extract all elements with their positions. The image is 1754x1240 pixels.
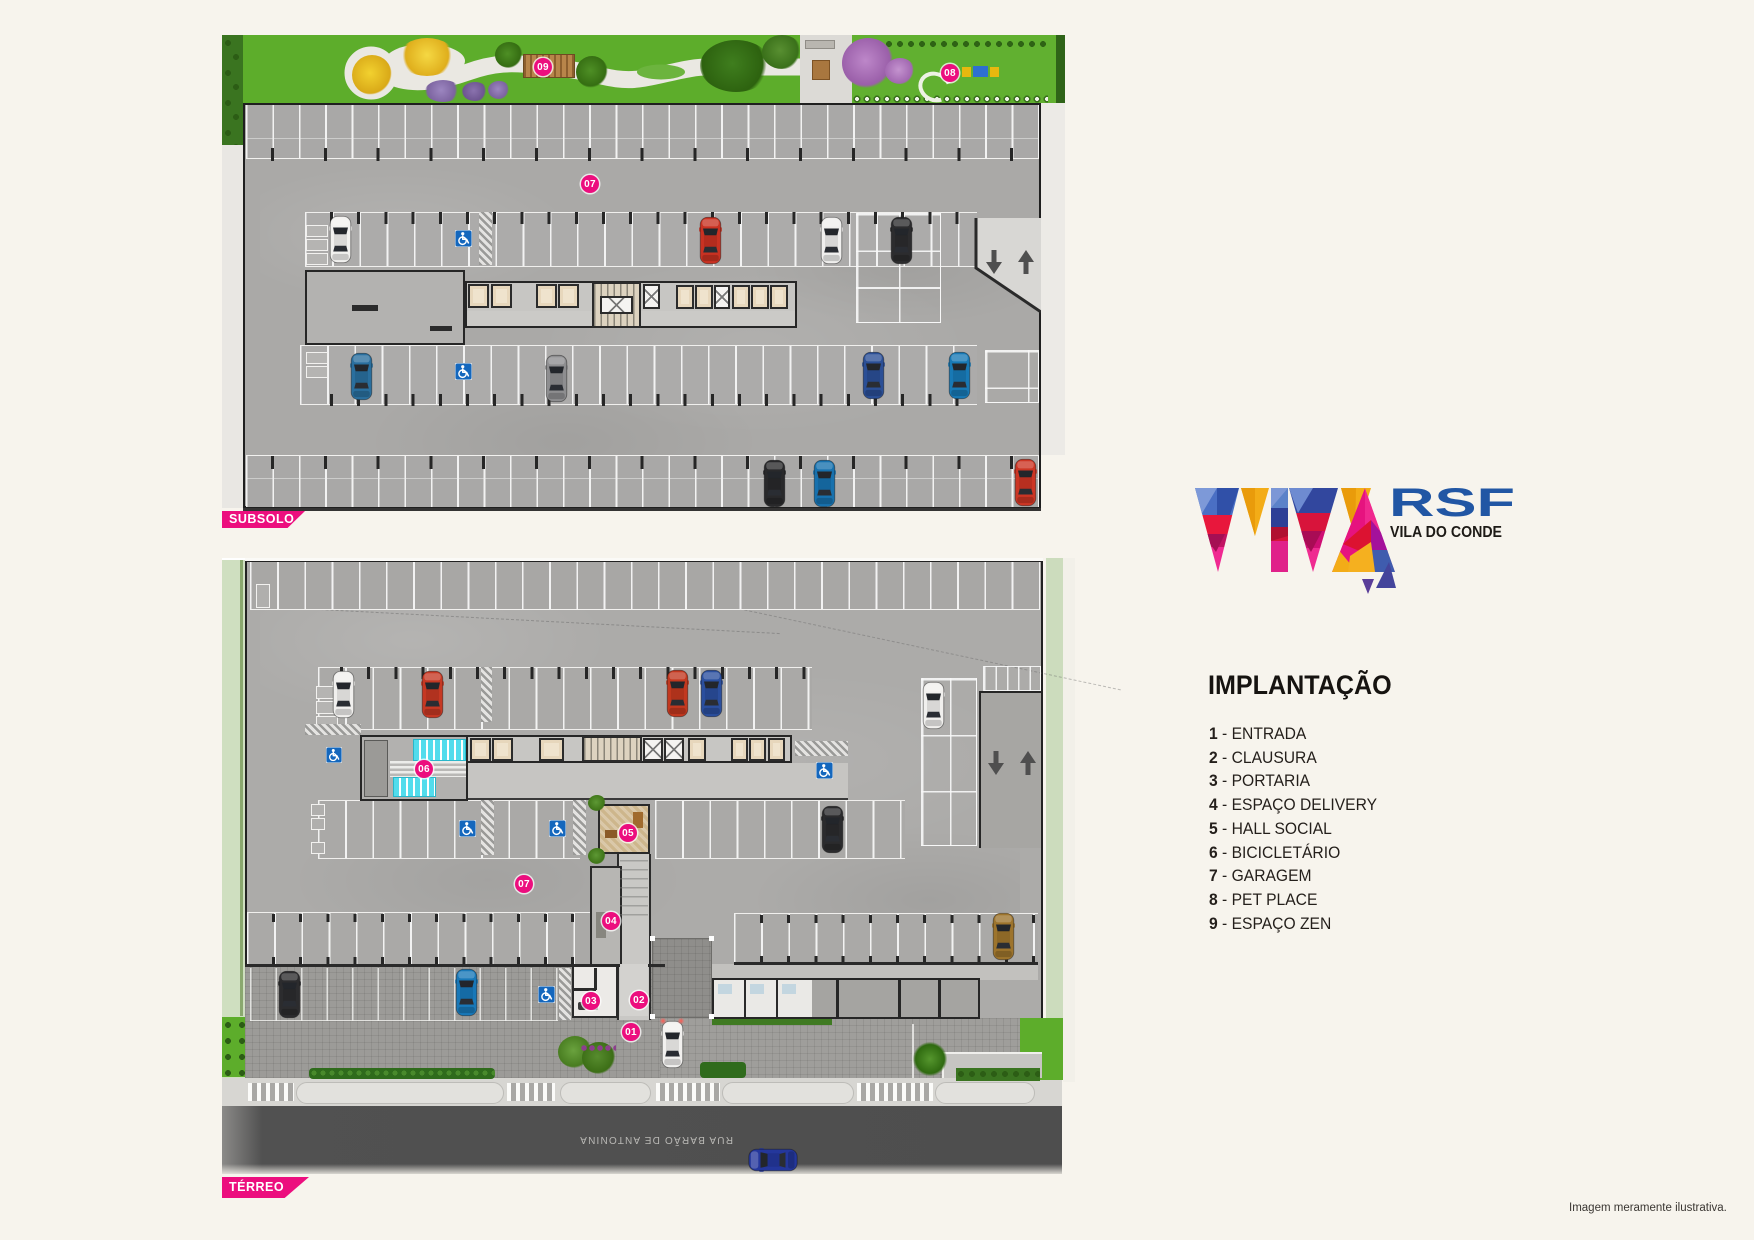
svg-text:RSF: RSF (1389, 486, 1515, 525)
svg-text:VILA DO CONDE: VILA DO CONDE (1390, 524, 1502, 541)
